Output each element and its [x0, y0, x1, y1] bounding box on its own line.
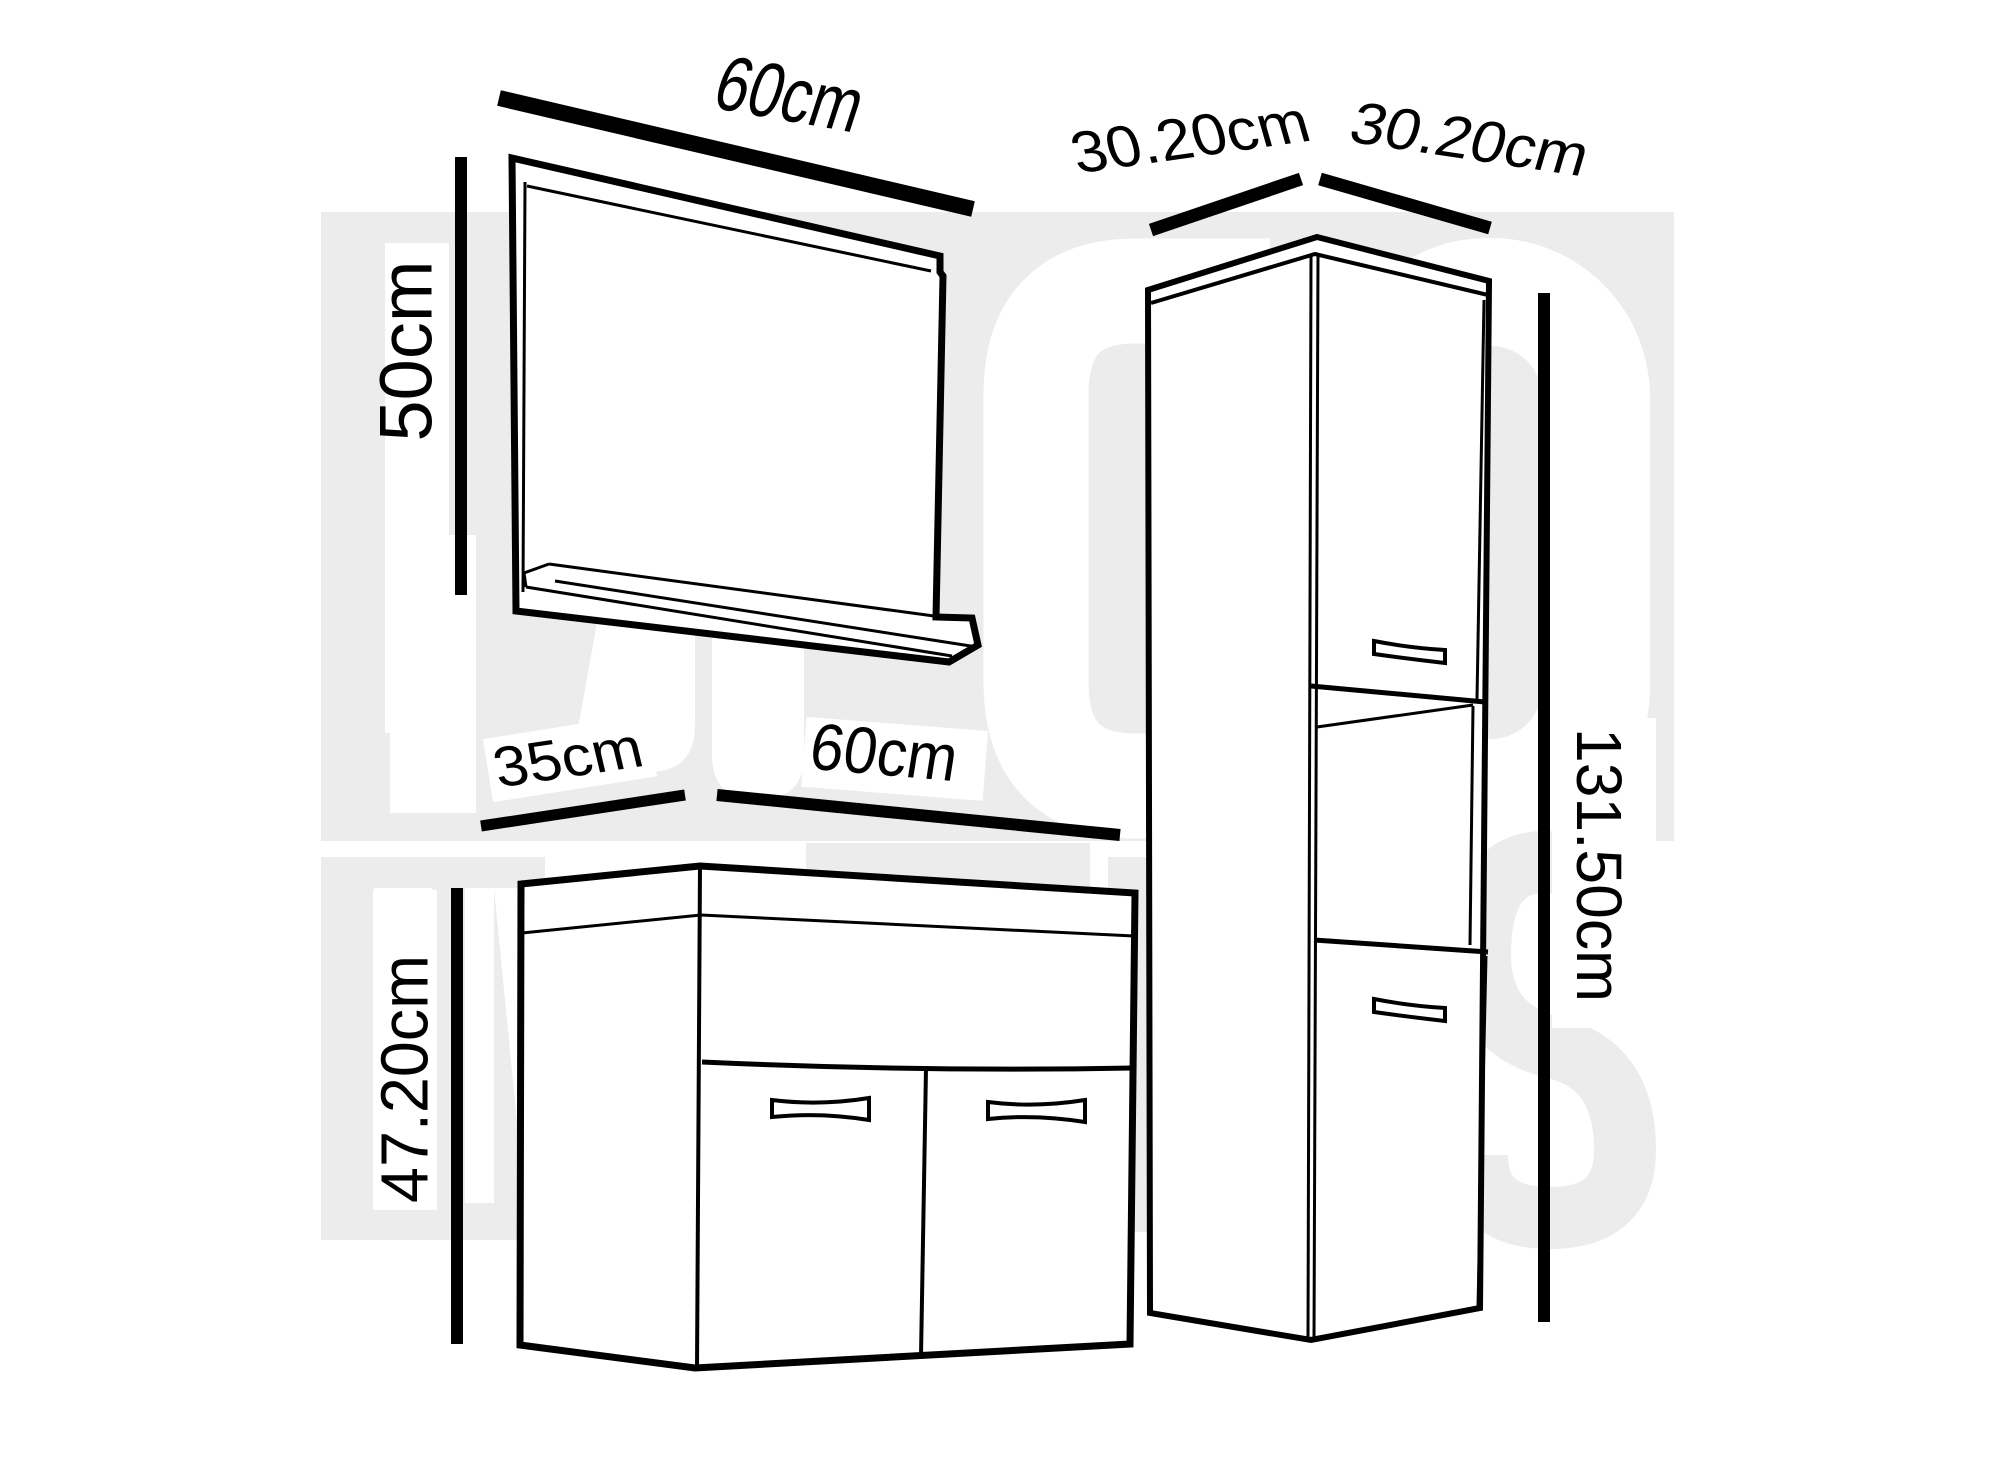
svg-text:60cm: 60cm	[805, 710, 963, 796]
svg-text:30.20cm: 30.20cm	[1343, 89, 1598, 189]
svg-text:47.20cm: 47.20cm	[368, 955, 443, 1203]
svg-text:131.50cm: 131.50cm	[1563, 728, 1635, 1002]
svg-text:60cm: 60cm	[704, 39, 875, 148]
svg-text:50cm: 50cm	[365, 261, 448, 442]
svg-text:30.20cm: 30.20cm	[1063, 88, 1317, 186]
